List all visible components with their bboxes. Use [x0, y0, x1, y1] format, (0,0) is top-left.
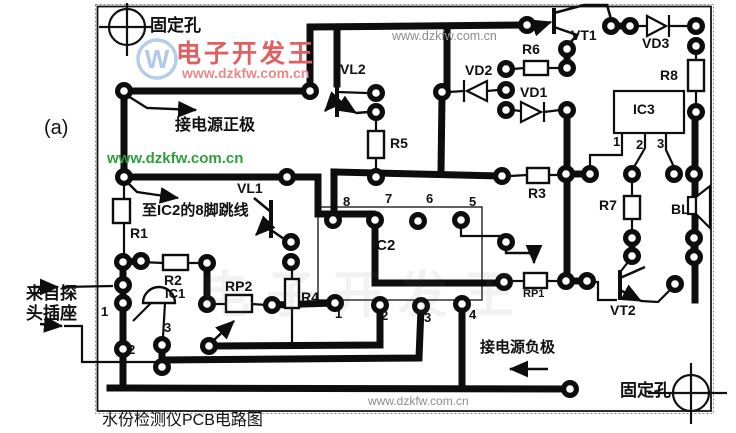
probe-note-label: 来自探 头插座	[26, 284, 77, 323]
watermark-url-gray-top: www.dzkfw.com.cn	[392, 29, 497, 43]
label-vd3: VD3	[642, 35, 669, 51]
jumper-note-label: 至IC2的8脚跳线	[142, 202, 249, 219]
figure-label: (a)	[44, 117, 68, 140]
ic3-pin-1: 1	[613, 135, 620, 150]
brand-logo-icon: W	[138, 40, 176, 78]
fixing-hole-label-tl: 固定孔	[150, 16, 201, 36]
label-r3: R3	[528, 185, 546, 201]
label-ic2: IC2	[372, 237, 395, 254]
ic2-pin-6: 6	[426, 192, 433, 207]
pcb-layout-figure: 电子开发王	[0, 0, 736, 433]
ic1-pin-1: 1	[101, 305, 108, 320]
ic2-pin-5: 5	[469, 195, 476, 210]
watermark-url-gray-bottom: www.dzkfw.com.cn	[368, 395, 469, 409]
probe-note-line1: 来自探	[26, 284, 77, 304]
label-vd2: VD2	[465, 62, 492, 78]
watermark-url-red: www.dzkfw.com.cn	[182, 65, 309, 81]
ic2-pin-8: 8	[343, 195, 350, 210]
label-vt1: VT1	[571, 27, 597, 43]
label-r4: R4	[301, 289, 319, 305]
ic2-pin-7: 7	[385, 192, 392, 207]
label-r8: R8	[660, 67, 678, 83]
label-vl2: VL2	[340, 61, 366, 77]
pcb-diagram-art: W	[0, 0, 736, 433]
ic1-pin-3: 3	[164, 321, 171, 336]
probe-note-line2: 头插座	[26, 304, 77, 324]
ic2-pin-1: 1	[335, 307, 342, 322]
power-positive-label: 接电源正极	[175, 117, 255, 135]
label-r5: R5	[390, 135, 408, 151]
speaker-icon	[688, 186, 710, 228]
label-ic1: IC1	[165, 287, 185, 302]
figure-caption: 水份检测仪PCB电路图	[102, 412, 263, 430]
ic3-pin-3: 3	[657, 137, 664, 152]
label-rp2: RP2	[225, 278, 252, 294]
ic2-pin-2: 2	[381, 309, 388, 324]
ic3-pin-2: 2	[636, 138, 643, 153]
label-ic3: IC3	[633, 101, 655, 117]
ic2-pin-4: 4	[469, 308, 476, 323]
svg-text:W: W	[145, 44, 170, 74]
fixing-hole-label-br: 固定孔	[620, 381, 671, 401]
label-bl: BL	[671, 201, 690, 217]
label-rp1: RP1	[523, 288, 544, 301]
label-vl1: VL1	[237, 180, 263, 196]
ic1-pin-2: 2	[128, 343, 135, 358]
label-vd1: VD1	[520, 84, 547, 100]
label-r6: R6	[522, 41, 540, 57]
watermark-url-green: www.dzkfw.com.cn	[107, 150, 243, 167]
power-negative-label: 接电源负极	[480, 339, 555, 356]
label-r1: R1	[130, 225, 148, 241]
label-vt2: VT2	[610, 302, 636, 318]
ic2-pin-3: 3	[424, 311, 431, 326]
label-r7: R7	[599, 197, 617, 213]
